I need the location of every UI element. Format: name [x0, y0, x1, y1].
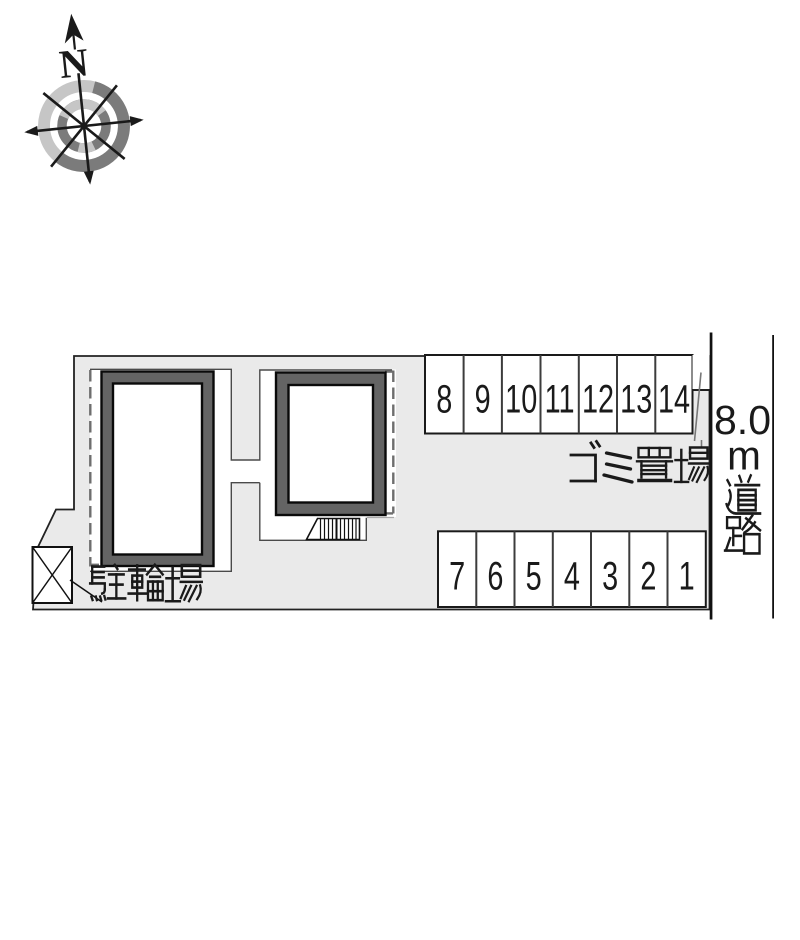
svg-text:14: 14 [658, 378, 690, 421]
svg-text:2: 2 [640, 555, 656, 598]
svg-text:1: 1 [679, 555, 695, 598]
svg-text:8: 8 [436, 378, 452, 421]
svg-text:13: 13 [620, 378, 652, 421]
svg-text:7: 7 [449, 555, 465, 598]
svg-text:5: 5 [526, 555, 542, 598]
svg-text:6: 6 [487, 555, 503, 598]
svg-text:11: 11 [545, 378, 575, 421]
svg-text:4: 4 [564, 555, 580, 598]
svg-text:m: m [727, 433, 761, 479]
svg-text:10: 10 [505, 378, 537, 421]
svg-text:9: 9 [475, 378, 491, 421]
svg-text:3: 3 [602, 555, 618, 598]
svg-text:N: N [57, 39, 91, 87]
svg-text:12: 12 [582, 378, 614, 421]
